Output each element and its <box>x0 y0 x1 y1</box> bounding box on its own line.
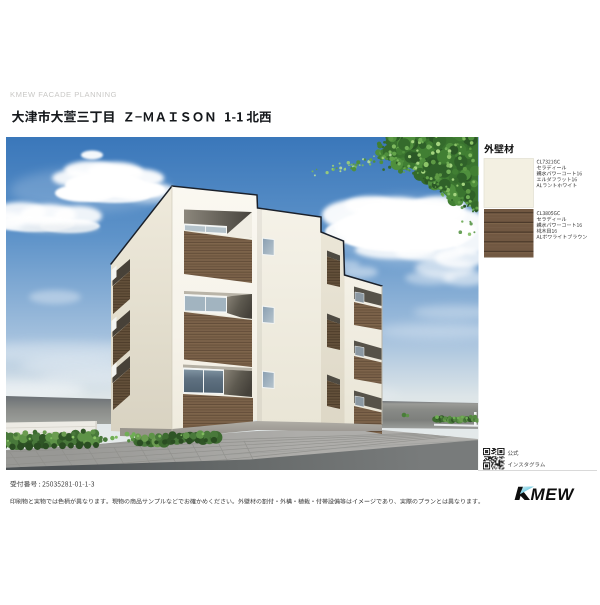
svg-text:KMEW FACADE PLANNING: KMEW FACADE PLANNING <box>10 90 117 99</box>
svg-text:MEW: MEW <box>531 485 576 504</box>
